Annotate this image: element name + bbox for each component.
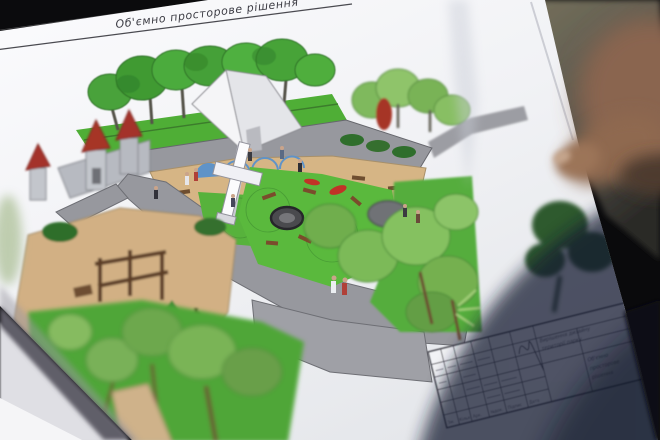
red-shrub	[376, 98, 392, 130]
photo-of-plan: Об'ємно просторове рішення	[0, 0, 660, 440]
scene: Об'ємно просторове рішення	[0, 0, 660, 440]
